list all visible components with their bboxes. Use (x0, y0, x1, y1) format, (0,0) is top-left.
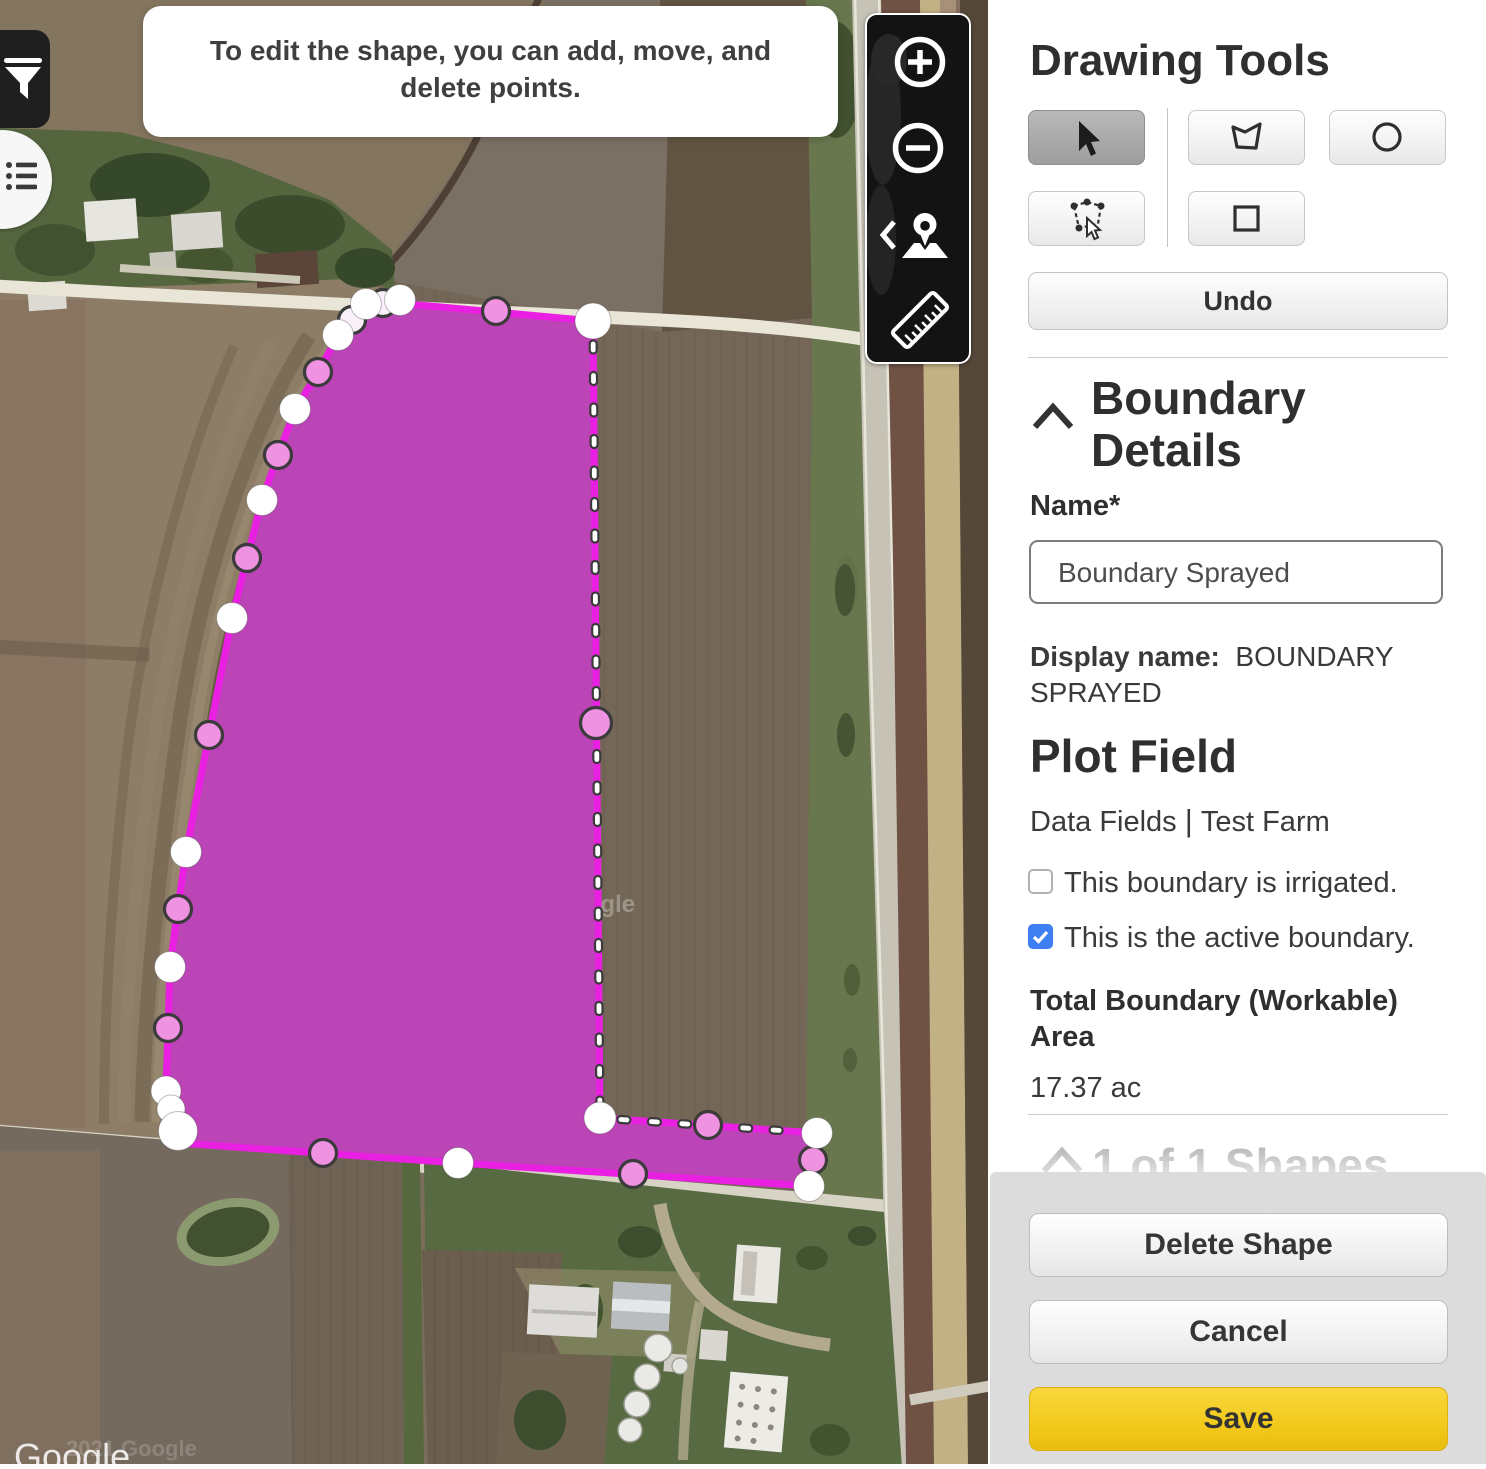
svg-text:2021 Google: 2021 Google (66, 1436, 197, 1461)
